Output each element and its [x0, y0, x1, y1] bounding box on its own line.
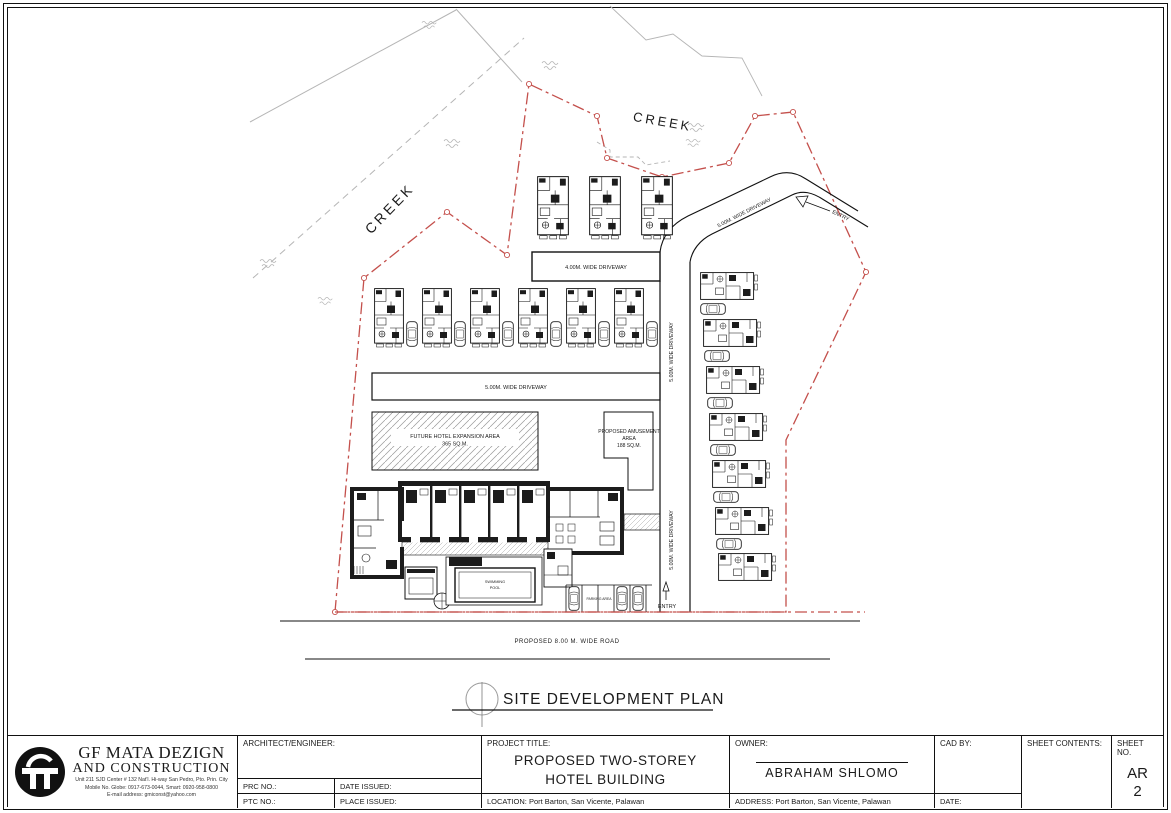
cad-by-label: CAD BY: [935, 736, 1021, 748]
owner-address-text: ADDRESS: Port Barton, San Vicente, Palaw… [730, 793, 934, 808]
cottage-unit [642, 177, 673, 239]
car [617, 587, 627, 611]
car [599, 322, 610, 347]
cottage-unit [423, 289, 452, 347]
project-title-label: PROJECT TITLE: [482, 736, 729, 748]
creek-label-top: CREEK [632, 109, 693, 134]
owner-name: ABRAHAM SHLOMO [765, 766, 898, 780]
car [455, 322, 466, 347]
prc-no-label: PRC NO.: [238, 779, 335, 793]
car [705, 351, 730, 362]
cottage-unit [704, 320, 761, 347]
car [708, 398, 733, 409]
driveway-diagonal-upper-edge [660, 173, 858, 252]
cottage-unit [707, 367, 764, 394]
project-title-cell: PROJECT TITLE: PROPOSED TWO-STOREY HOTEL… [482, 736, 730, 808]
driveway-5m-right-lower-label: 5.00M. WIDE DRIVEWAY [669, 510, 675, 570]
entry-top-arrow-icon [796, 196, 830, 211]
cad-by-cell: CAD BY: DATE: [935, 736, 1022, 808]
car [701, 304, 726, 315]
cottage-unit [471, 289, 500, 347]
entry-bottom-arrow-icon [663, 582, 669, 600]
cottage-unit [713, 461, 770, 488]
swimming-pool [455, 568, 535, 602]
main-hotel-building [350, 481, 660, 609]
amusement-area [604, 412, 653, 490]
architect-cell: ARCHITECT/ENGINEER: PRC NO.: DATE ISSUED… [238, 736, 482, 808]
pool-label-2: POOL [490, 586, 501, 590]
ptc-no-label: PTC NO.: [238, 794, 335, 808]
amusement-area-size: 188 SQ.M. [617, 443, 641, 449]
company-name-line2: AND CONSTRUCTION [72, 761, 231, 777]
date-label: DATE: [935, 793, 1021, 808]
cottage-unit [375, 289, 404, 347]
owner-cell: OWNER: ABRAHAM SHLOMO ADDRESS: Port Bart… [730, 736, 935, 808]
owner-label: OWNER: [730, 736, 934, 748]
project-title-line1: PROPOSED TWO-STOREY [514, 752, 697, 770]
car [717, 539, 742, 550]
car [407, 322, 418, 347]
driveway-5m-right-upper-label: 5.00M. WIDE DRIVEWAY [669, 322, 675, 382]
company-email: E-mail address: gmiconst@yahoo.com [72, 792, 231, 800]
car [503, 322, 514, 347]
amusement-area-label2: AREA [622, 436, 636, 442]
company-mobile: Mobile No. Globe: 0917-673-0044, Smart: … [72, 785, 231, 793]
water-squiggle-icon [686, 139, 700, 146]
driveway-4m-label: 4.00M. WIDE DRIVEWAY [565, 265, 627, 271]
car [647, 322, 658, 347]
cottage-unit [719, 554, 776, 581]
sheet-no-line2: 2 [1133, 783, 1141, 801]
car [711, 445, 736, 456]
creek-lines [250, 6, 762, 305]
boundary-line [335, 84, 866, 612]
plan-title: SITE DEVELOPMENT PLAN [503, 691, 724, 708]
corridor [402, 542, 548, 555]
guestroom-furniture [406, 489, 544, 543]
company-logo [14, 746, 66, 798]
water-squiggle-icon [444, 140, 460, 148]
cottage-unit [710, 414, 767, 441]
cottage-row-middle [375, 289, 658, 347]
cottage-unit [590, 177, 621, 239]
cottage-row-top [538, 177, 673, 239]
signature-line [756, 762, 908, 763]
cottage-unit [519, 289, 548, 347]
creek-label-left: CREEK [362, 180, 417, 237]
company-name-line1: GF MATA DEZIGN [72, 744, 231, 761]
car [633, 587, 643, 611]
title-block: GF MATA DEZIGN AND CONSTRUCTION Unit 211… [8, 735, 1163, 808]
left-wing [350, 487, 404, 579]
parking-area-label: PARKING AREA [587, 597, 613, 601]
project-title-line2: HOTEL BUILDING [545, 771, 665, 789]
property-boundary [332, 81, 868, 614]
reserved-areas [372, 412, 653, 490]
cottage-unit [716, 508, 773, 535]
car [714, 492, 739, 503]
sheet-no-label: SHEET NO. [1112, 736, 1163, 757]
driveway-diag-label: 5.00M. WIDE DRIVEWAY [717, 197, 773, 230]
boundary-corner-markers [332, 81, 868, 614]
site-plan-drawing: CREEK CREEK 4.00M. WIDE DRIVEWAY 5.00M. … [0, 0, 1171, 735]
company-address: Unit 211 SJD Center # 132 Nat'l. Hi-way … [72, 777, 231, 785]
driveway-5m-mid-label: 5.00M. WIDE DRIVEWAY [485, 385, 547, 391]
expansion-area-size: 365 SQ.M. [442, 442, 468, 448]
pool-label-1: SWIMMING [485, 580, 505, 584]
cottage-column-right [701, 273, 776, 581]
water-squiggle-icon [542, 62, 558, 70]
right-wing [548, 487, 624, 555]
sheet-contents-cell: SHEET CONTENTS: [1022, 736, 1112, 808]
entry-top-label: ENTRY [831, 209, 850, 223]
water-squiggle-icon [260, 260, 276, 268]
cottage-unit [538, 177, 569, 239]
walkway-connector [624, 514, 660, 530]
sheet-no-line1: AR [1127, 765, 1148, 783]
entry-bottom-label: ENTRY [658, 604, 677, 610]
architect-label: ARCHITECT/ENGINEER: [238, 736, 481, 778]
location-text: LOCATION: Port Barton, San Vicente, Pala… [482, 793, 729, 808]
date-issued-label: DATE ISSUED: [335, 779, 481, 793]
cottage-unit [615, 289, 644, 347]
water-squiggle-icon [318, 297, 332, 304]
car [551, 322, 562, 347]
place-issued-label: PLACE ISSUED: [335, 794, 481, 808]
road-label: PROPOSED 8.00 M. WIDE ROAD [514, 639, 619, 645]
company-block: GF MATA DEZIGN AND CONSTRUCTION Unit 211… [8, 736, 238, 808]
cottage-unit [567, 289, 596, 347]
sheet-contents-label: SHEET CONTENTS: [1022, 736, 1111, 748]
sheet-no-cell: SHEET NO. AR 2 [1112, 736, 1163, 808]
amusement-area-label: PROPOSED AMUSEMENT [598, 429, 659, 435]
expansion-area-label: FUTURE HOTEL EXPANSION AREA [410, 434, 500, 440]
cottage-unit [701, 273, 758, 300]
car [569, 587, 579, 611]
